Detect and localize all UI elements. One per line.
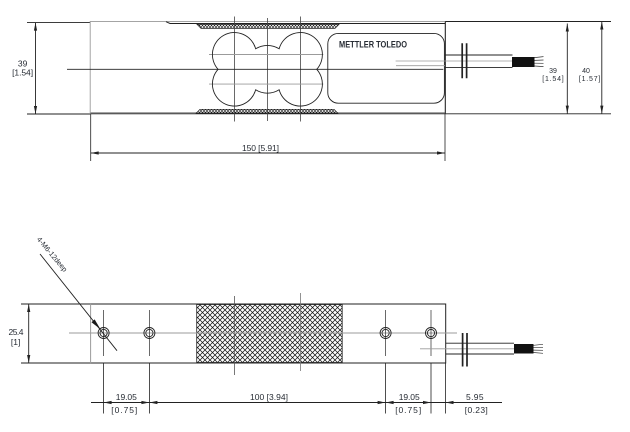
svg-text:[0.23]: [0.23] [465, 405, 488, 415]
svg-text:[1.54]: [1.54] [12, 68, 33, 78]
svg-text:40: 40 [582, 68, 590, 75]
svg-text:39: 39 [549, 68, 557, 75]
svg-text:5.95: 5.95 [466, 392, 484, 402]
svg-text:[1.57]: [1.57] [579, 76, 601, 83]
svg-text:[1]: [1] [11, 337, 20, 347]
svg-text:METTLER TOLEDO: METTLER TOLEDO [339, 40, 407, 50]
svg-text:100 [3.94]: 100 [3.94] [250, 392, 288, 402]
svg-text:[1.54]: [1.54] [542, 76, 564, 83]
svg-text:[0.75]: [0.75] [395, 405, 421, 415]
svg-text:150 [5.91]: 150 [5.91] [242, 143, 279, 153]
svg-text:25.4: 25.4 [9, 327, 24, 337]
svg-text:19.05: 19.05 [116, 392, 137, 402]
svg-text:[0.75]: [0.75] [111, 405, 137, 415]
svg-text:19.05: 19.05 [399, 392, 420, 402]
